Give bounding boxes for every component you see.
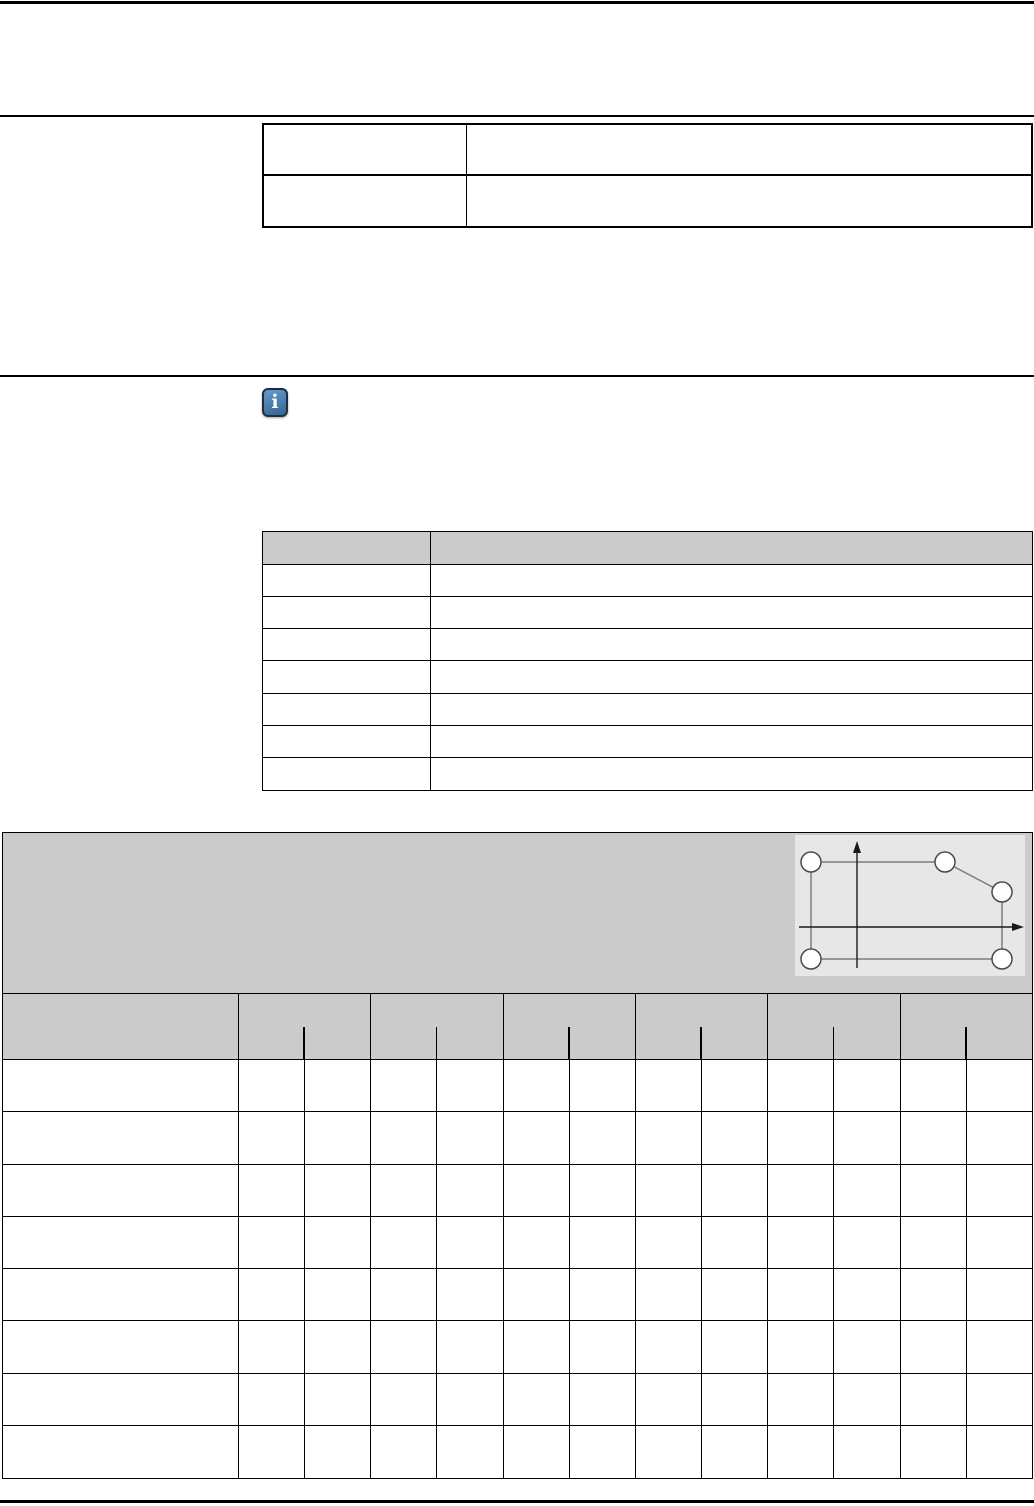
- matrix-cell: [238, 1112, 304, 1163]
- matrix-cell: [966, 1426, 1032, 1478]
- matrix-row-label-cell: [3, 1060, 238, 1111]
- matrix-cell: [238, 1269, 304, 1320]
- figure-panel: [3, 833, 1032, 994]
- figure-node-circle: [801, 852, 821, 872]
- matrix-cell: [701, 1426, 767, 1478]
- matrix-cell: [503, 1374, 569, 1425]
- matrix-cell: [569, 1374, 635, 1425]
- matrix-subcolumn-header-cell: [304, 994, 370, 1059]
- matrix-cell: [304, 1165, 370, 1216]
- matrix-cell: [304, 1374, 370, 1425]
- matrix-cell: [503, 1165, 569, 1216]
- matrix-cell: [569, 1426, 635, 1478]
- top-table: [262, 123, 1033, 228]
- matrix-cell: [503, 1269, 569, 1320]
- top-table-cell: [467, 176, 1031, 227]
- matrix-cell: [238, 1426, 304, 1478]
- spec-table: [262, 531, 1033, 791]
- matrix-cell: [900, 1217, 966, 1268]
- matrix-row-label-cell: [3, 1217, 238, 1268]
- spec-table-header-cell: [431, 532, 1032, 565]
- matrix-cell: [900, 1060, 966, 1111]
- spec-table-cell: [263, 629, 431, 661]
- matrix-row: [3, 1426, 1032, 1478]
- matrix-row-label-cell: [3, 1112, 238, 1163]
- matrix-cell: [635, 1112, 701, 1163]
- matrix-body: [3, 1060, 1032, 1478]
- matrix-subcolumn-header-cell: [966, 994, 1032, 1059]
- top-table-cell: [264, 125, 467, 176]
- matrix-cell: [436, 1060, 502, 1111]
- matrix-table: [2, 832, 1033, 1479]
- matrix-cell: [833, 1060, 899, 1111]
- matrix-cell: [833, 1374, 899, 1425]
- matrix-cell: [635, 1321, 701, 1372]
- spec-table-cell: [263, 726, 431, 758]
- info-icon-glyph: i: [271, 393, 278, 412]
- matrix-cell: [900, 1112, 966, 1163]
- matrix-subcolumn-header-cell: [436, 994, 502, 1059]
- matrix-row-label-cell: [3, 1269, 238, 1320]
- spec-table-cell: [431, 758, 1032, 790]
- matrix-cell: [503, 1112, 569, 1163]
- matrix-cell: [767, 1321, 833, 1372]
- matrix-cell: [569, 1217, 635, 1268]
- matrix-subcolumn-header-cell: [569, 994, 635, 1059]
- matrix-cell: [569, 1112, 635, 1163]
- matrix-cell: [701, 1060, 767, 1111]
- spec-table-cell: [431, 597, 1032, 629]
- matrix-cell: [833, 1321, 899, 1372]
- matrix-group-header-cell: [900, 994, 966, 1059]
- matrix-cell: [900, 1426, 966, 1478]
- matrix-cell: [635, 1165, 701, 1216]
- top-rule: [0, 1, 1034, 4]
- matrix-cell: [569, 1269, 635, 1320]
- matrix-subcolumn-header-cell: [701, 994, 767, 1059]
- matrix-cell: [966, 1269, 1032, 1320]
- matrix-cell: [304, 1321, 370, 1372]
- spec-table-cell: [263, 758, 431, 790]
- matrix-cell: [966, 1060, 1032, 1111]
- matrix-row: [3, 1060, 1032, 1112]
- matrix-cell: [370, 1217, 436, 1268]
- matrix-cell: [304, 1426, 370, 1478]
- matrix-cell: [966, 1217, 1032, 1268]
- matrix-cell: [370, 1060, 436, 1111]
- matrix-cell: [966, 1321, 1032, 1372]
- matrix-cell: [569, 1060, 635, 1111]
- matrix-cell: [436, 1321, 502, 1372]
- matrix-cell: [833, 1426, 899, 1478]
- top-table-cell: [264, 176, 467, 227]
- figure-node-circle: [992, 949, 1012, 969]
- matrix-cell: [701, 1165, 767, 1216]
- matrix-cell: [238, 1374, 304, 1425]
- matrix-cell: [833, 1112, 899, 1163]
- matrix-cell: [370, 1165, 436, 1216]
- matrix-cell: [767, 1374, 833, 1425]
- spec-table-cell: [431, 694, 1032, 726]
- matrix-label-header-cell: [3, 994, 238, 1059]
- figure-node-circle: [992, 882, 1012, 902]
- matrix-cell: [503, 1321, 569, 1372]
- matrix-cell: [503, 1426, 569, 1478]
- matrix-cell: [569, 1321, 635, 1372]
- matrix-group-header-cell: [503, 994, 569, 1059]
- footer-rule: [0, 1500, 1034, 1503]
- matrix-cell: [370, 1321, 436, 1372]
- derating-figure-svg: [795, 835, 1025, 976]
- matrix-cell: [833, 1165, 899, 1216]
- matrix-cell: [503, 1060, 569, 1111]
- matrix-cell: [701, 1321, 767, 1372]
- matrix-cell: [436, 1165, 502, 1216]
- matrix-cell: [767, 1269, 833, 1320]
- matrix-subcolumn-header-cell: [833, 994, 899, 1059]
- matrix-cell: [635, 1060, 701, 1111]
- matrix-cell: [304, 1217, 370, 1268]
- spec-table-cell: [431, 565, 1032, 597]
- spec-table-cell: [431, 661, 1032, 693]
- spec-table-cell: [431, 726, 1032, 758]
- matrix-cell: [436, 1426, 502, 1478]
- matrix-cell: [503, 1217, 569, 1268]
- matrix-row-label-cell: [3, 1165, 238, 1216]
- figure-node-circle: [801, 949, 821, 969]
- figure-node-circle: [935, 852, 955, 872]
- matrix-cell: [701, 1269, 767, 1320]
- matrix-group-header-cell: [370, 994, 436, 1059]
- matrix-cell: [569, 1165, 635, 1216]
- matrix-row-label-cell: [3, 1374, 238, 1425]
- matrix-cell: [304, 1269, 370, 1320]
- section-divider-1: [0, 115, 1034, 117]
- spec-table-cell: [263, 597, 431, 629]
- matrix-group-header-cell: [767, 994, 833, 1059]
- matrix-cell: [304, 1060, 370, 1111]
- matrix-cell: [436, 1269, 502, 1320]
- matrix-row: [3, 1374, 1032, 1426]
- matrix-header-row: [3, 994, 1032, 1060]
- spec-table-cell: [263, 661, 431, 693]
- matrix-row: [3, 1321, 1032, 1373]
- matrix-cell: [304, 1112, 370, 1163]
- matrix-cell: [238, 1321, 304, 1372]
- matrix-cell: [238, 1217, 304, 1268]
- matrix-cell: [635, 1374, 701, 1425]
- matrix-cell: [833, 1217, 899, 1268]
- matrix-cell: [900, 1374, 966, 1425]
- matrix-row-label-cell: [3, 1321, 238, 1372]
- matrix-cell: [701, 1112, 767, 1163]
- matrix-group-header-cell: [635, 994, 701, 1059]
- top-table-cell: [467, 125, 1031, 176]
- matrix-cell: [635, 1269, 701, 1320]
- matrix-cell: [966, 1112, 1032, 1163]
- matrix-cell: [370, 1112, 436, 1163]
- matrix-cell: [900, 1269, 966, 1320]
- matrix-cell: [370, 1269, 436, 1320]
- matrix-cell: [900, 1165, 966, 1216]
- matrix-cell: [436, 1217, 502, 1268]
- matrix-cell: [238, 1060, 304, 1111]
- matrix-row-label-cell: [3, 1426, 238, 1478]
- matrix-cell: [767, 1217, 833, 1268]
- matrix-cell: [370, 1374, 436, 1425]
- derating-figure: [795, 835, 1025, 976]
- matrix-group-header-cell: [238, 994, 304, 1059]
- matrix-cell: [966, 1165, 1032, 1216]
- matrix-cell: [767, 1165, 833, 1216]
- matrix-row: [3, 1217, 1032, 1269]
- matrix-cell: [436, 1374, 502, 1425]
- info-icon: i: [262, 388, 288, 417]
- matrix-cell: [436, 1112, 502, 1163]
- matrix-cell: [370, 1426, 436, 1478]
- matrix-cell: [767, 1426, 833, 1478]
- matrix-row: [3, 1165, 1032, 1217]
- spec-table-cell: [263, 694, 431, 726]
- matrix-cell: [635, 1217, 701, 1268]
- matrix-cell: [767, 1112, 833, 1163]
- matrix-cell: [701, 1217, 767, 1268]
- matrix-cell: [701, 1374, 767, 1425]
- spec-table-cell: [263, 565, 431, 597]
- matrix-cell: [900, 1321, 966, 1372]
- matrix-row: [3, 1112, 1032, 1164]
- section-divider-2: [0, 375, 1034, 377]
- matrix-cell: [635, 1426, 701, 1478]
- matrix-row: [3, 1269, 1032, 1321]
- spec-table-cell: [431, 629, 1032, 661]
- spec-table-header-cell: [263, 532, 431, 565]
- matrix-cell: [833, 1269, 899, 1320]
- matrix-cell: [767, 1060, 833, 1111]
- matrix-cell: [966, 1374, 1032, 1425]
- matrix-cell: [238, 1165, 304, 1216]
